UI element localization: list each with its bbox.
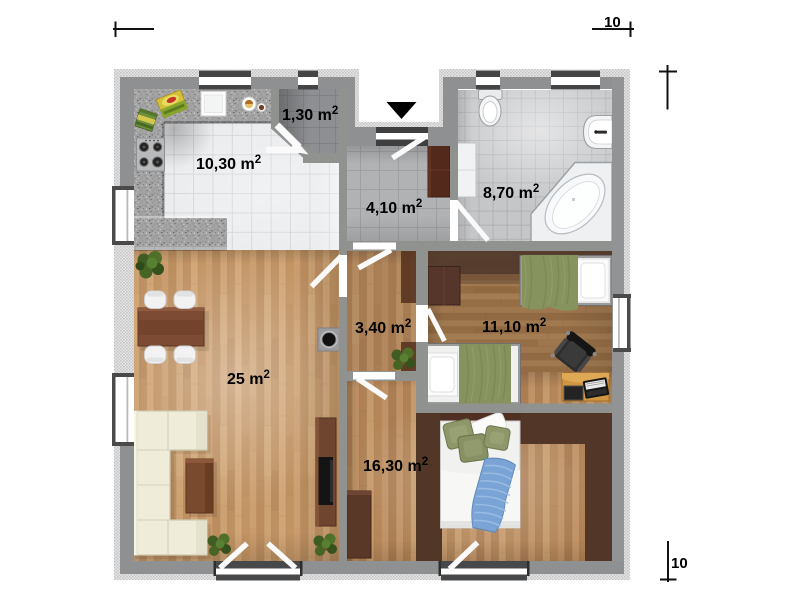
svg-text:8,70 m2: 8,70 m2 xyxy=(483,183,539,202)
svg-text:25 m2: 25 m2 xyxy=(227,369,270,388)
svg-text:3,40 m2: 3,40 m2 xyxy=(355,318,411,337)
svg-text:4,10 m2: 4,10 m2 xyxy=(366,198,422,217)
svg-text:10: 10 xyxy=(671,555,688,572)
svg-text:10,30 m2: 10,30 m2 xyxy=(196,154,261,173)
svg-text:10: 10 xyxy=(604,14,621,31)
svg-text:16,30 m2: 16,30 m2 xyxy=(363,456,428,475)
svg-text:11,10 m2: 11,10 m2 xyxy=(482,317,546,336)
svg-text:1,30 m2: 1,30 m2 xyxy=(282,105,338,124)
